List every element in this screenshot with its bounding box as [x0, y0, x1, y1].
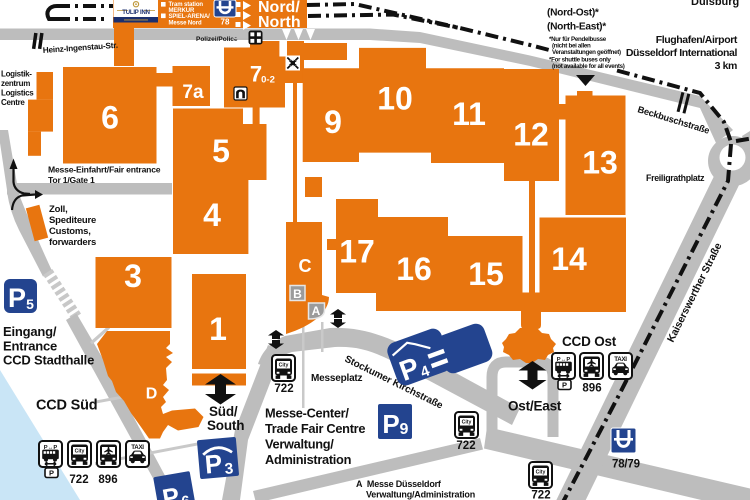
svg-text:0-2: 0-2: [261, 75, 275, 86]
svg-text:City: City: [75, 449, 85, 455]
svg-text:C: C: [299, 256, 312, 276]
svg-text:5: 5: [26, 296, 34, 312]
svg-text:City: City: [462, 420, 472, 426]
svg-text:B: B: [293, 287, 302, 301]
svg-text:11: 11: [452, 96, 486, 132]
svg-text:P: P: [204, 448, 224, 479]
svg-text:Freiligrathplatz: Freiligrathplatz: [646, 173, 705, 183]
svg-text:17: 17: [339, 234, 375, 270]
svg-text:MERKUR: MERKUR: [169, 8, 195, 14]
svg-text:4: 4: [203, 197, 221, 233]
svg-text:A: A: [312, 304, 321, 318]
svg-text:SPIEL-ARENA/: SPIEL-ARENA/: [169, 14, 211, 20]
svg-text:Duisburg: Duisburg: [691, 0, 739, 8]
svg-text:Centre: Centre: [1, 98, 25, 107]
svg-text:Verwaltung/: Verwaltung/: [265, 437, 334, 452]
svg-text:12: 12: [513, 117, 549, 153]
svg-text:Customs,: Customs,: [49, 226, 91, 237]
svg-text:D: D: [146, 386, 158, 403]
svg-text:9: 9: [324, 104, 342, 140]
svg-text:Tram station: Tram station: [169, 2, 204, 8]
svg-text:722: 722: [69, 474, 88, 486]
svg-text:Logistik-: Logistik-: [1, 70, 32, 79]
svg-text:(North-East)*: (North-East)*: [547, 22, 606, 33]
svg-text:P: P: [8, 283, 26, 313]
svg-text:Tor 1/Gate 1: Tor 1/Gate 1: [48, 175, 95, 185]
svg-text:TULIP INN: TULIP INN: [122, 10, 149, 16]
svg-text:14: 14: [551, 241, 587, 277]
svg-text:Polizei/Police: Polizei/Police: [196, 36, 238, 43]
svg-text:CCD Stadthalle: CCD Stadthalle: [3, 353, 94, 368]
svg-text:P: P: [382, 409, 399, 439]
svg-text:Logistics: Logistics: [1, 89, 34, 98]
svg-text:South: South: [207, 418, 244, 433]
svg-text:Messe-Einfahrt/Fair entrance: Messe-Einfahrt/Fair entrance: [48, 165, 161, 175]
svg-text:CCD Ost: CCD Ost: [562, 334, 617, 349]
svg-text:7a: 7a: [182, 82, 204, 103]
svg-text:722: 722: [274, 383, 293, 395]
svg-text:9: 9: [400, 421, 409, 438]
svg-text:1: 1: [209, 311, 227, 347]
svg-text:Flughafen/Airport: Flughafen/Airport: [656, 34, 738, 46]
svg-text:Eingang/: Eingang/: [3, 324, 57, 339]
svg-text:Beckbuschstraße: Beckbuschstraße: [636, 104, 710, 135]
svg-text:Veranstaltungen geöffnet): Veranstaltungen geöffnet): [552, 49, 621, 56]
svg-text:722: 722: [531, 490, 550, 500]
svg-text:896: 896: [582, 383, 601, 395]
svg-text:(not available for all events): (not available for all events): [552, 63, 625, 70]
svg-text:3 km: 3 km: [715, 60, 737, 72]
svg-text:896: 896: [98, 474, 117, 486]
svg-text:CCD Süd: CCD Süd: [36, 398, 97, 414]
svg-text:Spediteure: Spediteure: [49, 215, 96, 226]
svg-text:City: City: [536, 470, 546, 476]
svg-text:16: 16: [396, 251, 432, 287]
svg-text:Zoll,: Zoll,: [49, 204, 68, 215]
svg-text:Administration: Administration: [265, 452, 352, 467]
svg-text:Trade Fair Centre: Trade Fair Centre: [265, 421, 365, 436]
svg-text:722: 722: [456, 440, 475, 452]
svg-text:(Nord-Ost)*: (Nord-Ost)*: [547, 8, 599, 19]
svg-text:6: 6: [101, 100, 119, 136]
svg-text:15: 15: [468, 256, 504, 292]
svg-text:3: 3: [124, 258, 142, 294]
svg-text:5: 5: [212, 133, 230, 169]
svg-text:Messe-Center/: Messe-Center/: [265, 406, 349, 421]
svg-text:78/79: 78/79: [612, 459, 640, 471]
svg-text:Düsseldorf International: Düsseldorf International: [626, 47, 738, 59]
svg-text:78: 78: [221, 18, 230, 27]
svg-text:forwarders: forwarders: [49, 237, 96, 248]
svg-text:City: City: [279, 363, 289, 369]
svg-text:Süd/: Süd/: [209, 404, 238, 419]
svg-text:Ost/East: Ost/East: [508, 399, 562, 414]
svg-text:Entrance: Entrance: [3, 339, 57, 354]
svg-text:zentrum: zentrum: [1, 79, 30, 88]
svg-text:10: 10: [377, 81, 413, 117]
svg-text:Heinz-Ingenstau-Str.: Heinz-Ingenstau-Str.: [43, 41, 119, 55]
svg-text:Messe Nord: Messe Nord: [169, 20, 202, 26]
svg-text:Messeplatz: Messeplatz: [311, 373, 363, 384]
svg-text:North: North: [258, 14, 301, 31]
svg-text:A Messe Düsseldorf: A Messe Düsseldorf: [356, 479, 442, 489]
svg-text:13: 13: [582, 145, 618, 181]
svg-text:Verwaltung/Administration: Verwaltung/Administration: [366, 490, 475, 500]
